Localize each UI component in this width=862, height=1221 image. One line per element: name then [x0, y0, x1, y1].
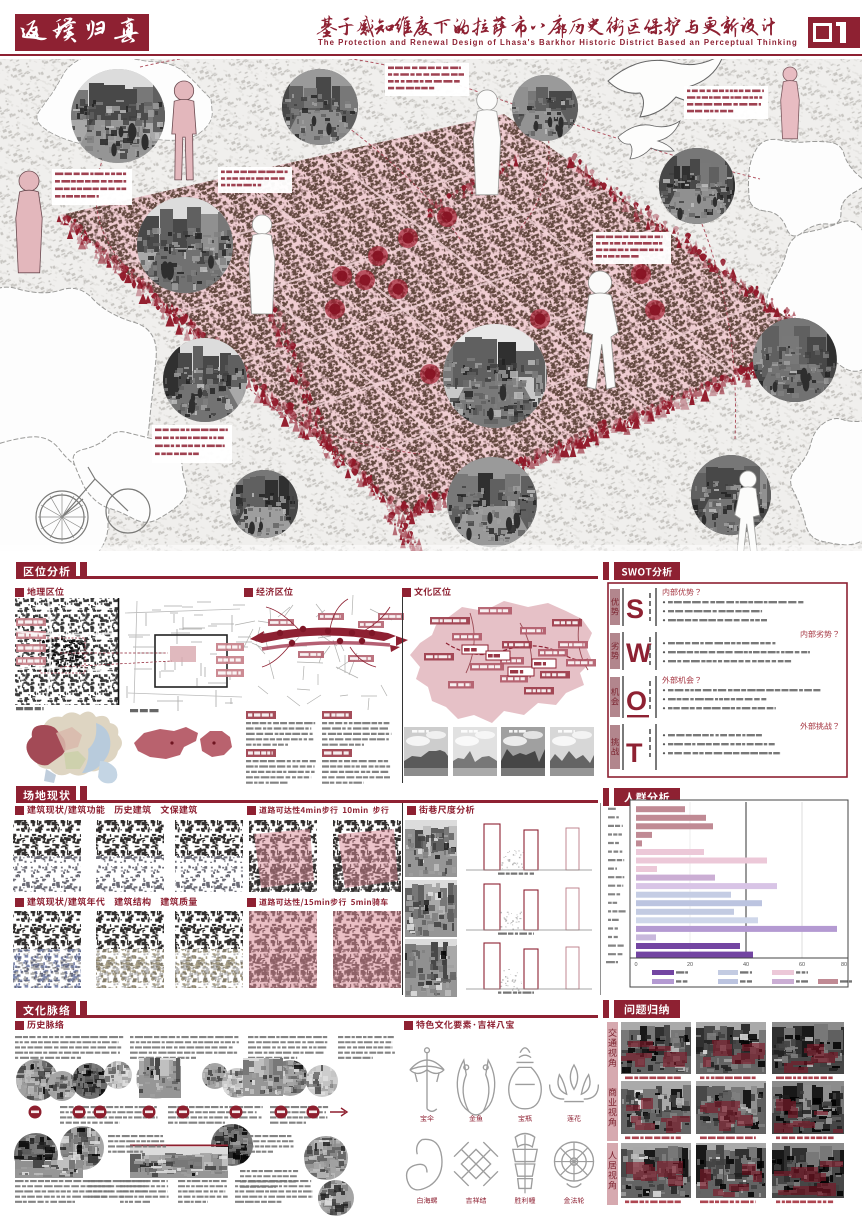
svg-text:T: T [626, 738, 643, 768]
svg-text:20: 20 [687, 962, 693, 968]
svg-text:80: 80 [841, 962, 847, 968]
svg-text:S: S [626, 594, 644, 624]
svg-text:W: W [626, 638, 652, 668]
svg-text:40: 40 [743, 962, 749, 968]
svg-text:0: 0 [634, 962, 637, 968]
svg-text:60: 60 [799, 962, 805, 968]
svg-text:O: O [626, 686, 647, 716]
